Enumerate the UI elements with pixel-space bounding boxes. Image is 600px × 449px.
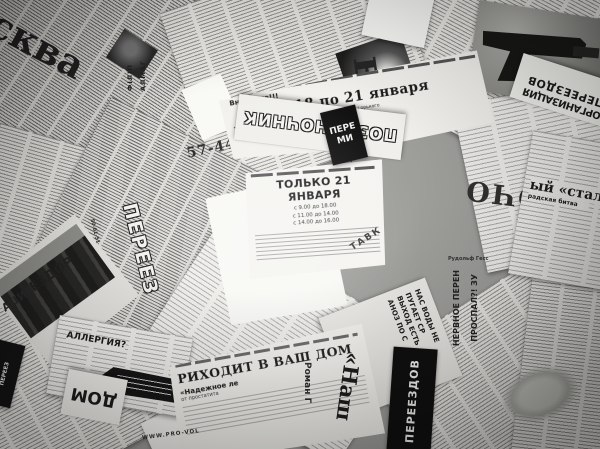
- headline-pereezdov-vertical: ПЕРЕЕЗДОВ: [403, 359, 422, 444]
- author-roman: Роман Г: [302, 362, 312, 403]
- text-almag: АЛМАГ: [139, 60, 147, 91]
- chip-text: МИ: [336, 134, 354, 147]
- headline-nervnoe: НЕРВНОЕ ПЕРЕН: [452, 270, 461, 346]
- text-filip: ФІЛІП: [126, 64, 134, 91]
- vertical-text-fragment: ФІЛІП АЛМАГ: [126, 60, 162, 130]
- headline-nash: «Наш: [331, 351, 365, 423]
- scrap-black-strip-pereezdov: ПЕРЕЕЗДОВ: [386, 347, 437, 449]
- newspaper-collage-photo: сква ва ФІЛІП АЛМАГ Внимание!!! с 18 по …: [0, 0, 600, 449]
- allergy-heading: АЛЛЕРГИЯ?: [66, 330, 127, 350]
- scrap-book-ad: «Наш Роман Г: [296, 352, 396, 449]
- scrap-ad-tolko: ТОЛЬКО 21 ЯНВАРЯ с 9.00 до 18.00 с 11.00…: [242, 159, 389, 278]
- headline-dom: ДОМ: [69, 383, 118, 412]
- scrap-vertical-headlines: Рудольф Гесс НЕРВНОЕ ПЕРЕН ПРОСПАЛ?! ЗУ: [444, 230, 504, 350]
- byline-rudolf: Рудольф Гесс: [448, 256, 488, 262]
- headline-prospal: ПРОСПАЛ?! ЗУ: [470, 274, 479, 342]
- chip-text: ПЕРЕЕЗ: [0, 362, 11, 387]
